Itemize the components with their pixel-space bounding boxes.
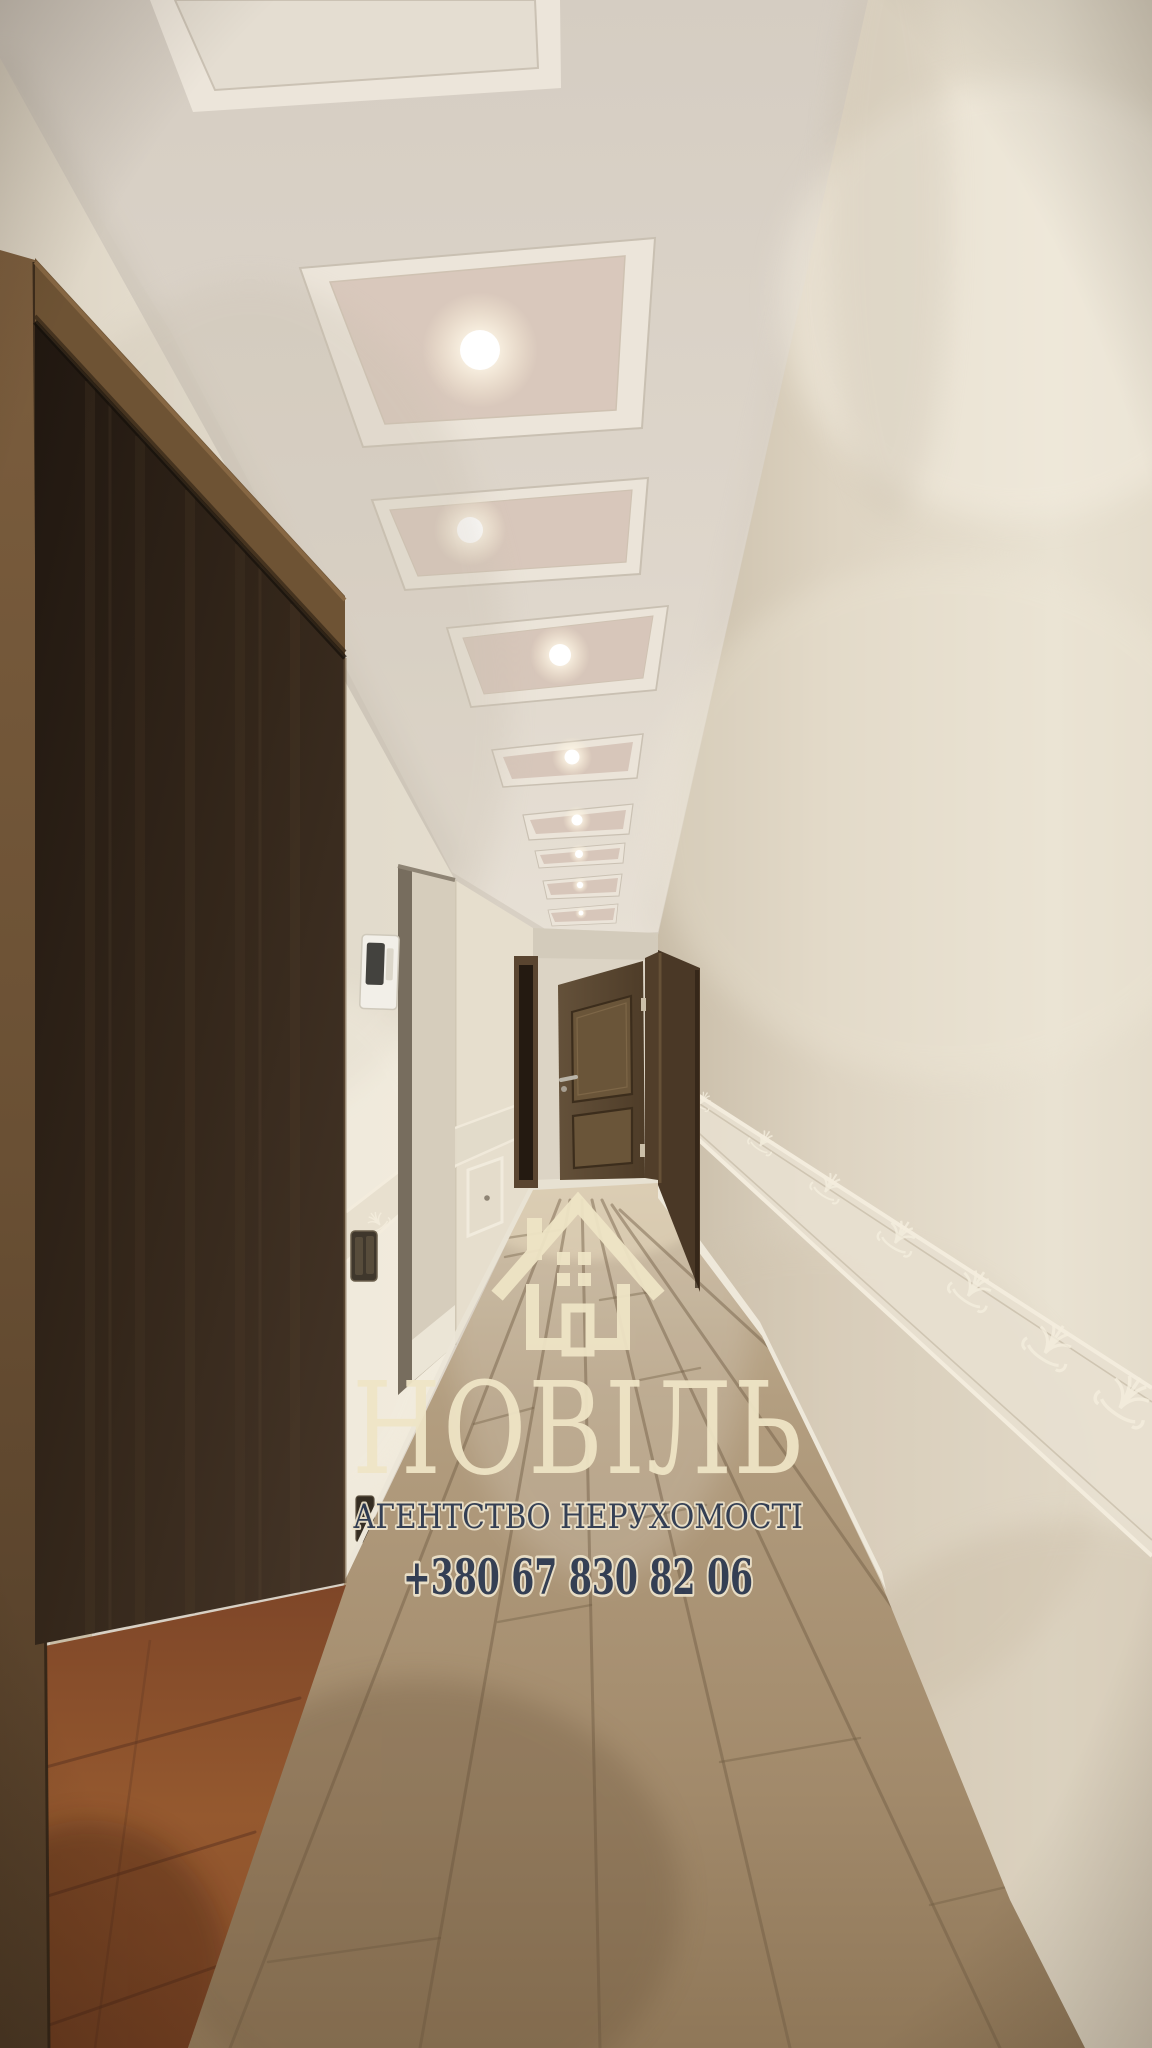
brand-title: НОВІЛЬ [352, 1355, 804, 1503]
brand-tagline: АГЕНТСТВО НЕРУХОМОСТІ [353, 1497, 803, 1537]
brand-phone: +380 67 830 82 06 [403, 1548, 753, 1606]
real-estate-photo-hallway: НОВІЛЬ АГЕНТСТВО НЕРУХОМОСТІ +380 67 830… [0, 0, 1152, 2048]
hallway-photo-canvas: НОВІЛЬ АГЕНТСТВО НЕРУХОМОСТІ +380 67 830… [0, 0, 1152, 2048]
vignette-overlay [0, 0, 1152, 2048]
